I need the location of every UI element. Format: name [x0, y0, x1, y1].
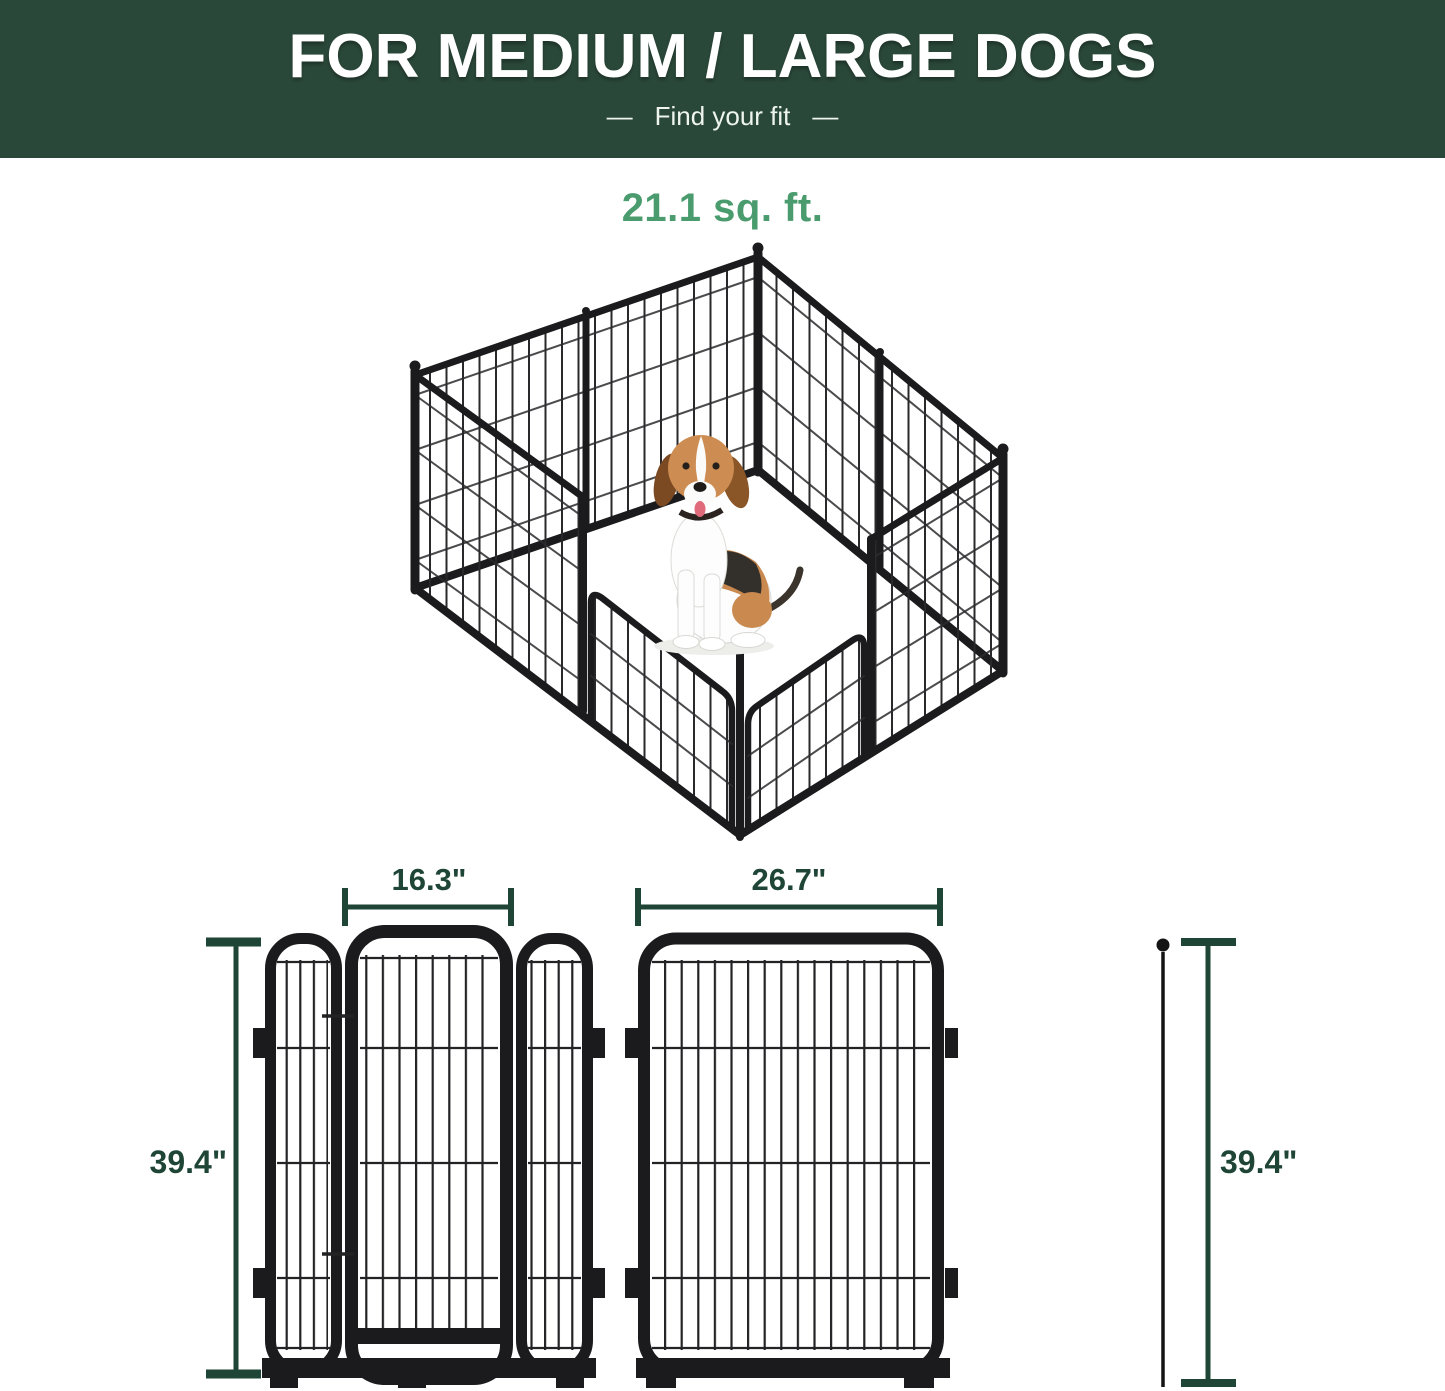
- product-infographic: FOR MEDIUM / LARGE DOGS — Find your fit …: [0, 0, 1445, 1391]
- door-section-diagram: [253, 932, 605, 1389]
- panel-width-label: 26.7": [689, 862, 889, 898]
- height-label-right: 39.4": [1220, 1144, 1380, 1181]
- scene-artwork: [0, 0, 1445, 1391]
- door-width-label: 16.3": [329, 862, 529, 898]
- single-panel-diagram: [625, 939, 958, 1389]
- ground-stake-illustration: [1157, 939, 1170, 1388]
- height-label-left: 39.4": [67, 1144, 227, 1181]
